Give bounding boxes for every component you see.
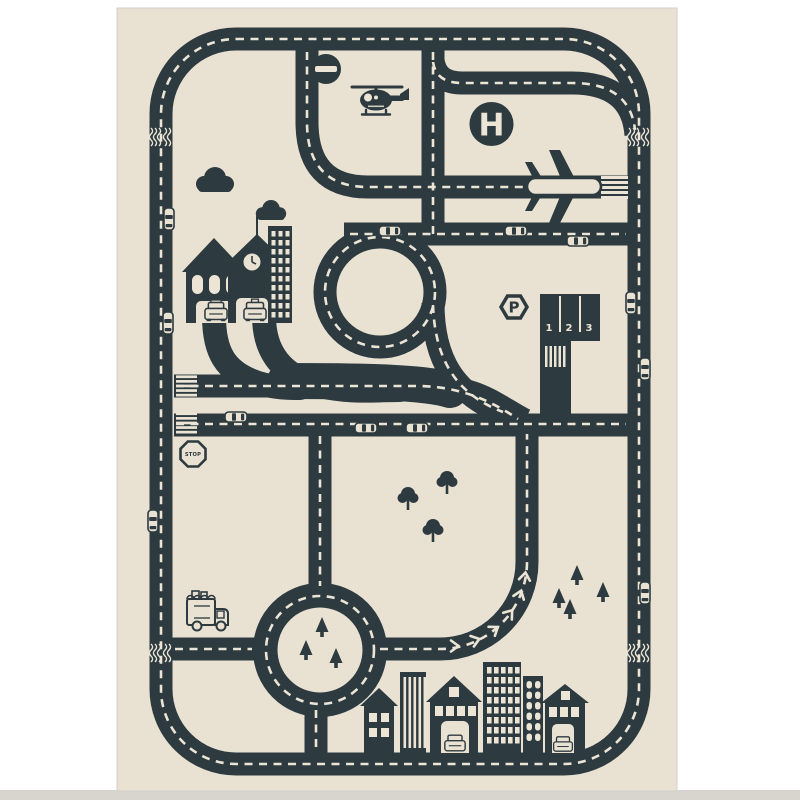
car-icon [626,292,636,314]
window [279,258,283,264]
car-icon [355,423,377,433]
window [501,707,506,714]
window [487,727,492,734]
car-icon [640,582,650,604]
taxi-van-front [244,299,266,321]
window [286,240,290,246]
window [508,667,513,674]
helipad-sign: H [470,102,514,146]
window [487,677,492,684]
window [272,267,276,273]
window [527,702,533,710]
window [527,734,533,742]
window [527,681,533,689]
skyline-big-tower [483,662,521,753]
window [508,737,513,744]
window [286,258,290,264]
window [508,697,513,704]
window [286,285,290,291]
window [279,303,283,309]
window [515,737,520,744]
window [501,687,506,694]
window [272,312,276,318]
window [286,312,290,318]
stall-number-2: 2 [566,323,573,334]
window [515,717,520,724]
window [508,727,513,734]
car-icon [379,226,401,236]
svg-text:H: H [479,108,505,144]
window [487,707,492,714]
window [494,687,499,694]
window [535,713,541,721]
car-icon [163,312,173,334]
roundabout-island [278,608,363,693]
window [272,294,276,300]
window [535,723,541,731]
window [494,667,499,674]
window [272,285,276,291]
stall-number-3: 3 [586,323,593,334]
window [494,737,499,744]
window [494,707,499,714]
garage-car-front [554,737,573,751]
window [515,697,520,704]
car-icon [406,423,428,433]
window [279,285,283,291]
window [515,667,520,674]
window [286,276,290,282]
window [487,687,492,694]
window [272,303,276,309]
window [535,702,541,710]
window [286,249,290,255]
window [286,294,290,300]
car-icon [164,208,174,230]
skyline-arched-building [523,676,543,753]
apartment-tower [268,226,292,323]
window [508,717,513,724]
window [279,249,283,255]
window [286,267,290,273]
window [487,667,492,674]
window [279,276,283,282]
window [272,240,276,246]
window [515,707,520,714]
window [286,231,290,237]
window [527,713,533,721]
window [501,697,506,704]
play-rug-photo: 1 2 3 H P STOP [0,0,800,800]
svg-text:P: P [509,299,520,317]
window [515,727,520,734]
window [279,267,283,273]
window [501,727,506,734]
car-icon [640,358,650,380]
window [535,681,541,689]
stall-number-1: 1 [546,323,553,334]
window [494,727,499,734]
window [508,687,513,694]
window [508,677,513,684]
skyline-stripe-tower [400,672,426,753]
window [279,294,283,300]
no-entry-sign [311,54,341,84]
window [487,697,492,704]
stop-sign: STOP [181,442,206,467]
window [501,677,506,684]
window [494,717,499,724]
airplane-fuselage [527,178,601,195]
window [279,312,283,318]
parking-sign: P [501,296,527,318]
window [279,240,283,246]
window [515,687,520,694]
window [494,677,499,684]
window [535,734,541,742]
window [272,276,276,282]
road-play-mat: 1 2 3 H P STOP [0,0,800,800]
window [494,697,499,704]
window [527,723,533,731]
window [272,249,276,255]
window [508,707,513,714]
window [286,303,290,309]
svg-text:STOP: STOP [185,452,201,458]
car-icon [567,236,589,246]
car-icon [148,510,158,532]
window [279,231,283,237]
window [272,231,276,237]
window [272,258,276,264]
window [501,667,506,674]
window [487,737,492,744]
car-icon [225,412,247,422]
window [501,737,506,744]
garage-car-front [445,735,465,751]
police-car-front [205,300,227,321]
window [535,692,541,700]
car-icon [505,226,527,236]
window [527,692,533,700]
window [487,717,492,724]
window [501,717,506,724]
window [515,677,520,684]
